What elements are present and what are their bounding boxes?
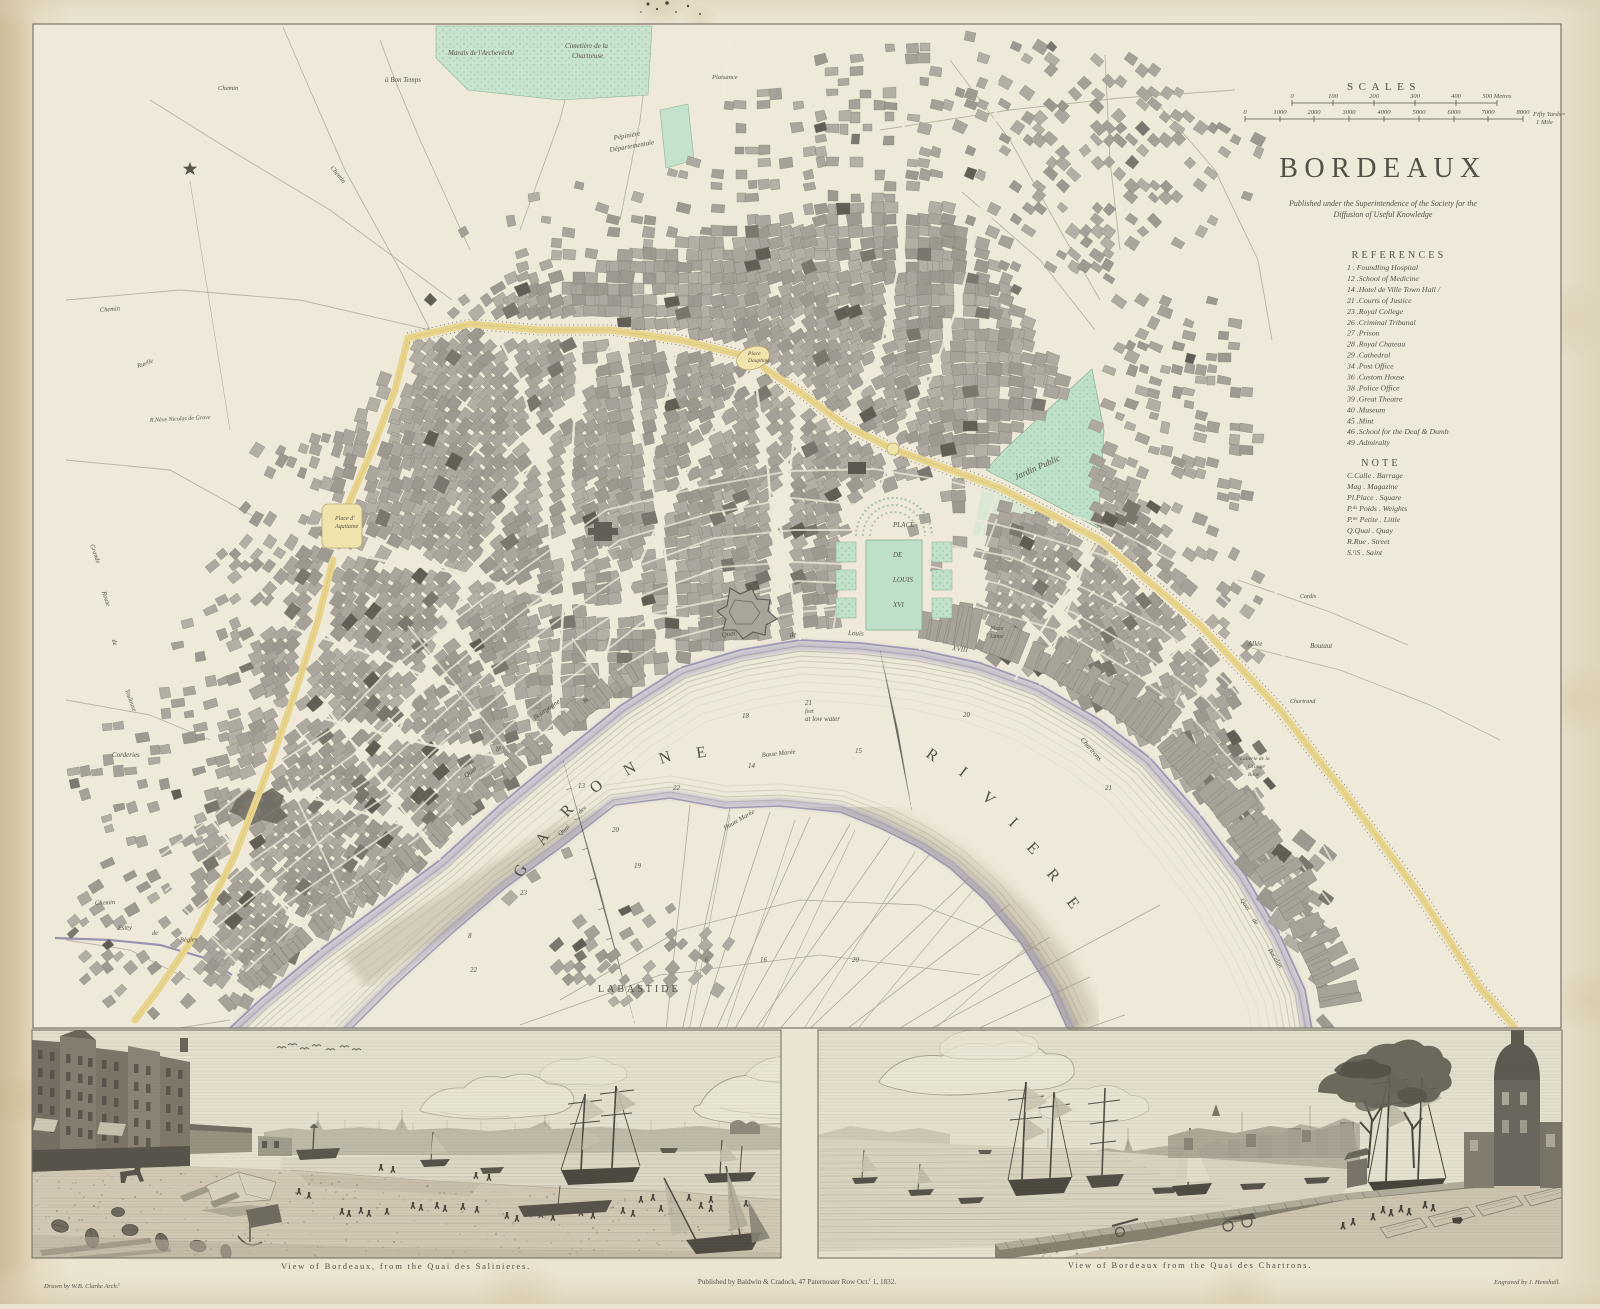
svg-text:S.t\S . Saint: S.t\S . Saint [1347,548,1383,557]
svg-text:45 .Mint: 45 .Mint [1347,416,1374,425]
svg-text:5000: 5000 [1413,109,1427,116]
svg-text:3000: 3000 [1342,109,1357,116]
svg-text:Place: Place [989,626,1004,632]
svg-text:NOTE: NOTE [1361,458,1400,469]
svg-text:Pl.Place . Square: Pl.Place . Square [1346,493,1402,502]
svg-text:BORDEAUX: BORDEAUX [1279,153,1487,184]
svg-text:Corderies: Corderies [112,751,140,759]
svg-text:Published by Baldwin & Cradock: Published by Baldwin & Cradock, 47 Pater… [698,1277,897,1286]
svg-text:16: 16 [760,956,768,964]
svg-text:Roué: Roué [1247,772,1260,778]
svg-text:100: 100 [1328,93,1339,100]
svg-text:at low water: at low water [805,715,840,723]
svg-text:23: 23 [520,889,528,897]
svg-text:49 .Admiralty: 49 .Admiralty [1347,438,1390,447]
svg-text:Q.Quai . Quay: Q.Quai . Quay [1347,526,1393,535]
svg-text:500 Metres: 500 Metres [1482,93,1512,100]
svg-text:Diffusion of Useful Knowledge: Diffusion of Useful Knowledge [1333,210,1433,219]
svg-text:19: 19 [634,862,642,870]
svg-text:Engraved by J. Henshall.: Engraved by J. Henshall. [1493,1279,1560,1286]
svg-text:de: de [152,930,159,937]
svg-text:6000: 6000 [1448,109,1462,116]
svg-text:20: 20 [612,826,620,834]
svg-text:Cimetière de la: Cimetière de la [565,42,608,50]
svg-text:21: 21 [805,699,812,707]
svg-text:Dauphine: Dauphine [747,358,770,364]
svg-text:27 .Prison: 27 .Prison [1347,329,1380,338]
svg-text:R.Rue . Street: R.Rue . Street [1346,537,1390,546]
svg-text:38 .Police Office: 38 .Police Office [1346,383,1400,392]
svg-text:12 .School of Medicine: 12 .School of Medicine [1347,274,1419,283]
svg-text:Cardis: Cardis [1300,594,1317,600]
svg-text:View of Bordeaux from the Quai: View of Bordeaux from the Quai des Chart… [1068,1260,1312,1270]
svg-text:8: 8 [468,932,472,940]
svg-text:46 .School for the Deaf & Dumb: 46 .School for the Deaf & Dumb [1347,427,1449,436]
svg-text:Bègles: Bègles [180,936,198,944]
svg-text:4000: 4000 [1378,109,1392,116]
svg-text:1 Mile: 1 Mile [1536,119,1553,126]
svg-text:20: 20 [852,956,860,964]
svg-text:21 .Courts of Justice: 21 .Courts of Justice [1347,296,1412,305]
svg-text:8000: 8000 [1517,109,1531,116]
svg-text:29 .Cathedral: 29 .Cathedral [1347,351,1390,360]
svg-text:SCALES: SCALES [1347,81,1421,93]
svg-text:feet: feet [805,708,814,715]
svg-text:View of Bordeaux, from the Qua: View of Bordeaux, from the Quai des Sali… [281,1261,531,1271]
svg-text:6: 6 [705,956,709,964]
svg-text:Louis: Louis [847,629,864,638]
svg-text:Place: Place [747,351,761,357]
svg-text:34 .Post Office: 34 .Post Office [1346,362,1394,371]
svg-text:Grange: Grange [1248,764,1265,770]
svg-text:Marais de l'Archevêché: Marais de l'Archevêché [447,49,515,57]
svg-text:Plaisance: Plaisance [711,74,738,81]
svg-text:39 .Great Theatre: 39 .Great Theatre [1346,394,1403,403]
svg-text:REFERENCES: REFERENCES [1352,250,1447,261]
svg-text:Chartreuse: Chartreuse [572,52,603,60]
svg-text:Place d': Place d' [334,516,355,522]
svg-text:de: de [789,630,796,639]
svg-text:1 . Foundling Hospital: 1 . Foundling Hospital [1347,263,1418,272]
svg-text:LOUIS: LOUIS [892,576,913,584]
svg-text:7000: 7000 [1482,109,1496,116]
svg-text:Lainé: Lainé [989,634,1004,640]
svg-text:Published under the Superinten: Published under the Superintendence of t… [1288,199,1477,208]
svg-text:Drawn by W.B. Clarke Arch.t: Drawn by W.B. Clarke Arch.t [43,1283,120,1291]
svg-text:14 .Hotel de Ville Town Hall /: 14 .Hotel de Ville Town Hall / [1347,285,1441,294]
svg-text:à Bon Temps: à Bon Temps [385,76,421,84]
svg-text:26 .Criminal Tribunal: 26 .Criminal Tribunal [1347,318,1416,327]
svg-text:14: 14 [748,762,756,770]
svg-text:200: 200 [1369,93,1380,100]
svg-text:Allée: Allée [1247,640,1262,648]
svg-text:LABASTIDE: LABASTIDE [598,984,681,995]
svg-text:Chemin: Chemin [95,899,116,907]
svg-text:21: 21 [1105,784,1112,792]
svg-text:Boutaut: Boutaut [1310,642,1333,650]
svg-text:28 .Royal Chateau: 28 .Royal Chateau [1347,340,1405,349]
svg-text:2000: 2000 [1308,109,1322,116]
svg-text:Laiterie de la: Laiterie de la [1239,756,1270,762]
svg-text:C.Calle . Barrage: C.Calle . Barrage [1347,471,1403,480]
svg-text:Mag . Magazine: Mag . Magazine [1346,482,1398,491]
svg-text:400: 400 [1451,93,1462,100]
svg-text:1000: 1000 [1274,109,1288,116]
svg-text:PLACE: PLACE [892,521,915,529]
svg-text:Fifty Yards=: Fifty Yards= [1532,111,1566,118]
svg-text:15: 15 [855,747,863,755]
svg-text:Chemin: Chemin [218,85,238,92]
svg-text:XVI: XVI [892,601,905,609]
svg-text:Estey: Estey [117,924,133,932]
svg-text:36 .Custom House: 36 .Custom House [1346,373,1405,382]
svg-text:Chartrand: Chartrand [1290,699,1316,705]
svg-text:23 .Royal College: 23 .Royal College [1347,307,1404,316]
svg-text:22: 22 [470,966,478,974]
svg-text:13: 13 [578,782,586,790]
svg-text:22: 22 [673,784,681,792]
svg-text:300: 300 [1409,93,1421,100]
svg-text:20: 20 [963,711,971,719]
svg-text:40 .Museum: 40 .Museum [1347,405,1385,414]
svg-text:Aquitaine: Aquitaine [334,524,359,530]
svg-text:18: 18 [742,712,750,720]
svg-text:DE: DE [892,551,903,559]
